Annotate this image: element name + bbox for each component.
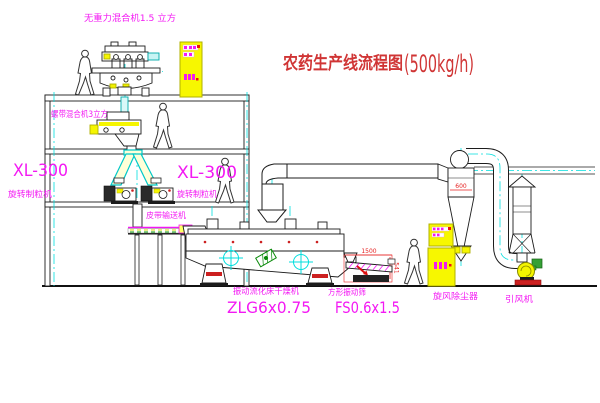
worker-figure (405, 239, 424, 284)
induced-draft-fan (515, 259, 542, 285)
down-pipe (133, 204, 142, 227)
title-main: 农药生产线流程图 (282, 53, 403, 74)
label-mixer-mid: 螺带混合机3立方 (51, 109, 108, 120)
label-xl300-mid: XL-300 (177, 163, 237, 183)
label-sieve-name: 方形振动筛 (328, 287, 366, 298)
dim-cyclone-600: 600 (455, 183, 467, 190)
label-mixer-top: 无重力混合机1.5 立方 (84, 12, 176, 24)
label-sieve-model: FS0.6x1.5 (335, 298, 400, 317)
diagram-canvas: 农药生产线流程图 (500kg/h) 无重力混合机1.5 立方 螺带混合机3立方… (0, 0, 600, 403)
label-dryer-name: 振动流化床干燥机 (233, 286, 299, 297)
dim-sieve-1500: 1500 (361, 248, 376, 255)
granulator-inlet-right (151, 178, 161, 183)
label-fan: 引风机 (505, 294, 534, 305)
granulator-right (141, 186, 175, 204)
worker-figure (76, 50, 95, 95)
exhaust-duct (258, 164, 438, 222)
title-capacity: (500kg/h) (404, 50, 474, 78)
granulator-inlet-left (114, 178, 124, 183)
label-xl300-mid-sub: 旋转制粒机 (177, 189, 217, 200)
dim-sieve-541: 541 (393, 262, 400, 274)
process-flow-diagram: 农药生产线流程图 (500kg/h) 无重力混合机1.5 立方 螺带混合机3立方… (0, 0, 600, 403)
label-cyclone: 旋风除尘器 (433, 291, 479, 302)
granulator-left (104, 186, 138, 204)
gravity-mixer (92, 42, 160, 112)
control-cabinet-right (428, 224, 455, 286)
label-dryer-model: ZLG6x0.75 (227, 298, 311, 317)
label-xl300-left-sub: 旋转制粒机 (8, 189, 53, 200)
worker-figure (154, 103, 173, 148)
label-xl300-left: XL-300 (13, 161, 68, 181)
label-belt-conveyor: 皮带输送机 (146, 210, 186, 220)
control-cabinet-top (180, 42, 202, 97)
